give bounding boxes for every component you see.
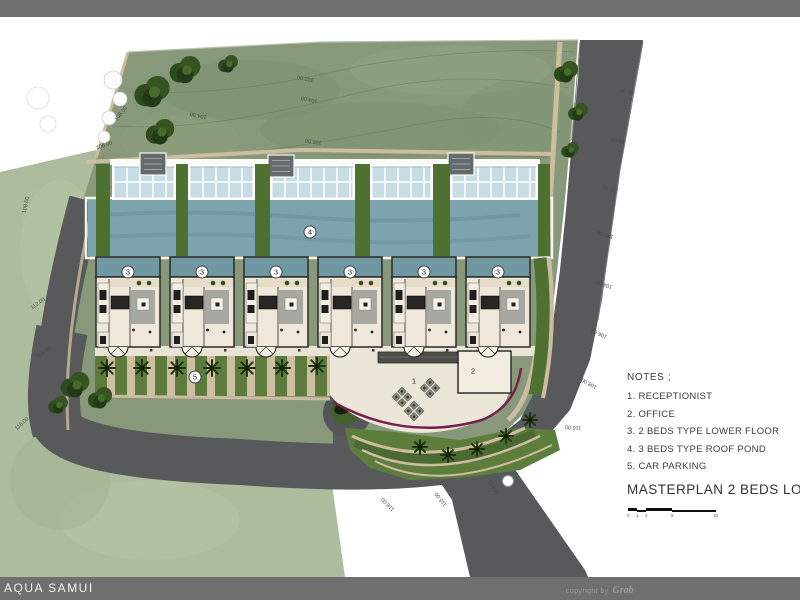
- palm-tree: [470, 442, 484, 456]
- plan-shape: [528, 418, 532, 422]
- notes-block: NOTES ; 1. RECEPTIONIST2. OFFICE3. 2 BED…: [627, 372, 779, 479]
- plan-shape: [512, 303, 516, 307]
- plan-shape: [433, 281, 438, 286]
- plan-label-4: 4: [304, 226, 317, 239]
- plan-shape: [142, 303, 146, 307]
- plan-shape: [140, 366, 144, 370]
- plan-shape: [109, 279, 159, 287]
- plan-shape: [369, 281, 374, 286]
- plan-label-3: 3: [492, 266, 505, 279]
- plan-shape: [175, 366, 179, 370]
- plan-shape: [405, 279, 455, 287]
- plan-shape: [438, 303, 442, 307]
- plan-shape: [132, 329, 135, 332]
- plan-shape: [446, 453, 450, 457]
- project-name: AQUA SAMUI: [4, 581, 94, 595]
- plan-shape: [538, 164, 550, 256]
- palm-tree: [499, 429, 513, 443]
- plan-shape: [517, 281, 522, 286]
- plan-shape: [280, 329, 283, 332]
- plan-shape: [100, 290, 107, 300]
- plan-shape: [155, 356, 167, 396]
- plan-shape: [504, 434, 508, 438]
- palm-tree: [309, 358, 325, 374]
- plan-shape: [322, 305, 329, 313]
- plan-title: MASTERPLAN 2 BEDS LOWER: [627, 482, 800, 497]
- plan-shape: [331, 279, 381, 287]
- plan-shape: [396, 290, 403, 300]
- plan-shape: [576, 109, 582, 115]
- plan-shape: [372, 349, 375, 352]
- plan-shape: [315, 364, 319, 368]
- scale-seg: [672, 510, 716, 512]
- plan-shape: [211, 281, 216, 286]
- plan-shape: [568, 147, 574, 153]
- note-item: 3. 2 BEDS TYPE LOWER FLOOR: [627, 426, 779, 437]
- palm-tree: [134, 360, 150, 376]
- plan-shape: [407, 296, 425, 309]
- plan-shape: [224, 349, 227, 352]
- plan-shape: [96, 164, 110, 256]
- plan-shape: [174, 336, 180, 344]
- palm-tree: [523, 413, 537, 427]
- bottom-title-bar: [0, 577, 800, 600]
- plan-shape: [333, 296, 351, 309]
- plan-shape: [100, 305, 107, 313]
- plan-shape: [468, 283, 479, 323]
- scale-tick: 5: [671, 513, 674, 518]
- copyright-prefix: copyright by: [566, 588, 609, 595]
- plan-shape: [157, 127, 166, 136]
- plan-shape: [322, 290, 329, 300]
- plan-shape: [470, 290, 477, 300]
- palm-tree: [441, 448, 455, 462]
- scale-seg: [637, 510, 646, 512]
- plan-shape: [216, 303, 220, 307]
- plan-shape: [223, 331, 226, 334]
- plan-label-1: 1: [412, 377, 416, 386]
- plan-shape: [248, 336, 254, 344]
- plan-label-3: 3: [344, 266, 357, 279]
- note-item: 5. CAR PARKING: [627, 461, 779, 472]
- plan-shape: [396, 305, 403, 313]
- notes-items: 1. RECEPTIONIST2. OFFICE3. 2 BEDS TYPE L…: [627, 391, 779, 472]
- notes-heading: NOTES ;: [627, 372, 779, 383]
- plan-shape: [72, 380, 81, 389]
- plan-shape: [183, 279, 233, 287]
- plan-shape: [255, 164, 270, 256]
- plan-shape: [481, 296, 499, 309]
- scale-seg: [628, 508, 637, 510]
- plan-shape: [298, 349, 301, 352]
- plan-shape: [280, 366, 284, 370]
- plan-shape: [257, 279, 307, 287]
- note-item: 2. OFFICE: [627, 409, 779, 420]
- plan-shape: [248, 290, 255, 300]
- plan-shape: [105, 366, 109, 370]
- plan-shape: [27, 87, 49, 109]
- palm-tree: [239, 360, 255, 376]
- plan-shape: [394, 283, 405, 323]
- plan-shape: [221, 281, 226, 286]
- plan-shape: [147, 281, 152, 286]
- plan-shape: [100, 336, 106, 344]
- scale-bar: 012510: [628, 507, 716, 517]
- palm-tree: [169, 360, 185, 376]
- plan-shape: [433, 164, 450, 256]
- note-item: 4. 3 BEDS TYPE ROOF POND: [627, 444, 779, 455]
- plan-label-3: 3: [270, 266, 283, 279]
- plan-shape: [322, 336, 328, 344]
- plan-label-3: 3: [418, 266, 431, 279]
- plan-shape: [475, 447, 479, 451]
- plan-shape: [174, 290, 181, 300]
- plan-shape: [418, 445, 422, 449]
- plan-shape: [295, 356, 307, 396]
- plan-label-3: 3: [196, 266, 209, 279]
- copyright-logo: Grab: [613, 585, 634, 596]
- plan-shape: [226, 61, 232, 67]
- masterplan-sheet: NOTES ; 1. RECEPTIONIST2. OFFICE3. 2 BED…: [0, 0, 800, 600]
- plan-shape: [290, 303, 294, 307]
- plan-shape: [364, 303, 368, 307]
- plan-shape: [56, 402, 62, 408]
- plan-shape: [470, 336, 476, 344]
- plan-shape: [115, 356, 127, 396]
- plan-shape: [320, 283, 331, 323]
- plan-shape: [172, 283, 183, 323]
- palm-tree: [99, 360, 115, 376]
- plan-shape: [40, 116, 56, 132]
- plan-shape: [354, 329, 357, 332]
- copyright-note: copyright byGrab: [566, 585, 634, 596]
- plan-shape: [98, 394, 106, 402]
- plan-shape: [295, 281, 300, 286]
- scale-tick: 2: [645, 513, 648, 518]
- scale-tick: 1: [636, 513, 639, 518]
- plan-shape: [502, 329, 505, 332]
- plan-shape: [479, 279, 529, 287]
- palm-tree: [204, 360, 220, 376]
- plan-shape: [507, 281, 512, 286]
- plan-label-5: 5: [189, 371, 202, 384]
- office-building: [458, 351, 511, 393]
- plan-shape: [259, 296, 277, 309]
- survey-marker: [503, 476, 514, 487]
- plan-shape: [246, 283, 257, 323]
- contour-label: 110.00: [565, 423, 582, 430]
- plan-shape: [113, 92, 127, 106]
- plan-shape: [446, 349, 449, 352]
- plan-shape: [176, 164, 188, 256]
- plan-shape: [149, 86, 160, 97]
- plan-shape: [519, 331, 522, 334]
- plan-label-2: 2: [471, 367, 475, 376]
- scale-tick: 0: [627, 513, 630, 518]
- plan-shape: [396, 336, 402, 344]
- plan-shape: [443, 281, 448, 286]
- plan-shape: [150, 349, 153, 352]
- plan-shape: [210, 366, 214, 370]
- palm-tree: [274, 360, 290, 376]
- scale-seg: [646, 508, 672, 510]
- palm-tree: [413, 440, 427, 454]
- plan-shape: [248, 305, 255, 313]
- plan-shape: [104, 71, 122, 89]
- plan-shape: [355, 164, 370, 256]
- plan-shape: [285, 281, 290, 286]
- plan-shape: [149, 331, 152, 334]
- plan-shape: [111, 296, 129, 309]
- plan-shape: [428, 329, 431, 332]
- plan-shape: [359, 281, 364, 286]
- plan-shape: [182, 65, 192, 75]
- plan-shape: [445, 331, 448, 334]
- plan-shape: [88, 200, 550, 256]
- note-item: 1. RECEPTIONIST: [627, 391, 779, 402]
- plan-shape: [185, 296, 203, 309]
- plan-label-3: 3: [122, 266, 135, 279]
- plan-shape: [98, 283, 109, 323]
- scale-tick: 10: [713, 513, 718, 518]
- plan-shape: [564, 68, 572, 76]
- plan-shape: [174, 305, 181, 313]
- plan-shape: [371, 331, 374, 334]
- plan-shape: [470, 305, 477, 313]
- plan-shape: [255, 356, 267, 396]
- plan-shape: [297, 331, 300, 334]
- plan-shape: [206, 329, 209, 332]
- plan-shape: [245, 366, 249, 370]
- plan-shape: [54, 330, 62, 430]
- plan-shape: [137, 281, 142, 286]
